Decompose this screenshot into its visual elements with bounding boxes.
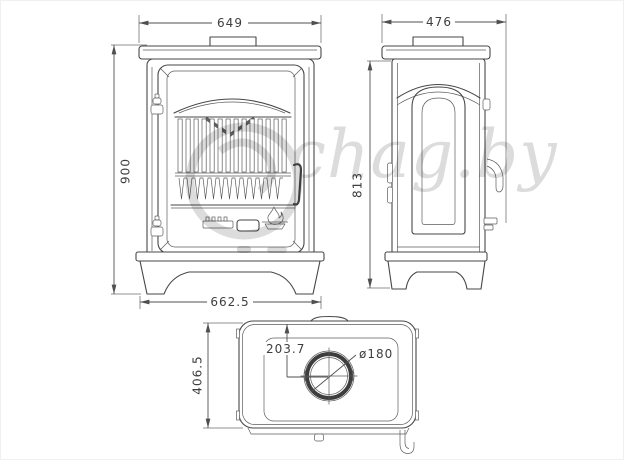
dim-label-front-width: 649 [217,16,243,30]
front-top-collar [210,37,256,46]
stove-technical-drawing: 649 900 662.5 [0,0,624,460]
side-stub-right [483,99,490,110]
front-top-plate [139,46,321,59]
dim-front-width: 649 [139,15,321,43]
dim-label-top-depth: 406.5 [191,355,205,394]
door-hinge-bottom [151,216,163,236]
watermark-smudge [267,247,287,253]
top-outline-outer [239,321,416,428]
side-legs [385,252,487,289]
dim-label-front-height: 900 [119,158,133,184]
dim-label-side-depth: 476 [426,15,452,29]
top-front-tab [315,434,324,441]
front-legs [136,252,324,294]
door-hinge-top [151,94,163,114]
top-rear-bump [311,317,348,322]
dim-flue-offset: 203.7 [263,324,328,377]
side-latch-catch [484,218,497,230]
dim-label-front-base-width: 662.5 [210,295,249,309]
dim-top-depth: 406.5 [190,323,243,428]
front-arch-vent [174,99,291,117]
drawing-svg: 649 900 662.5 [1,1,624,460]
watermark-text: chag.by [289,116,558,193]
side-top-plate [382,46,490,59]
flue-opening: ø180 [301,347,394,405]
dim-front-base-width: 662.5 [140,295,321,309]
watermark-smudge [237,246,251,253]
side-top-collar [413,37,463,46]
top-handle [400,430,414,454]
dim-label-flue-offset: 203.7 [266,342,305,356]
top-front-edge [248,428,409,434]
top-outline-inner [243,325,413,425]
top-view: ø180 203.7 406.5 [190,317,419,454]
dim-label-flue-diameter: ø180 [359,347,393,361]
